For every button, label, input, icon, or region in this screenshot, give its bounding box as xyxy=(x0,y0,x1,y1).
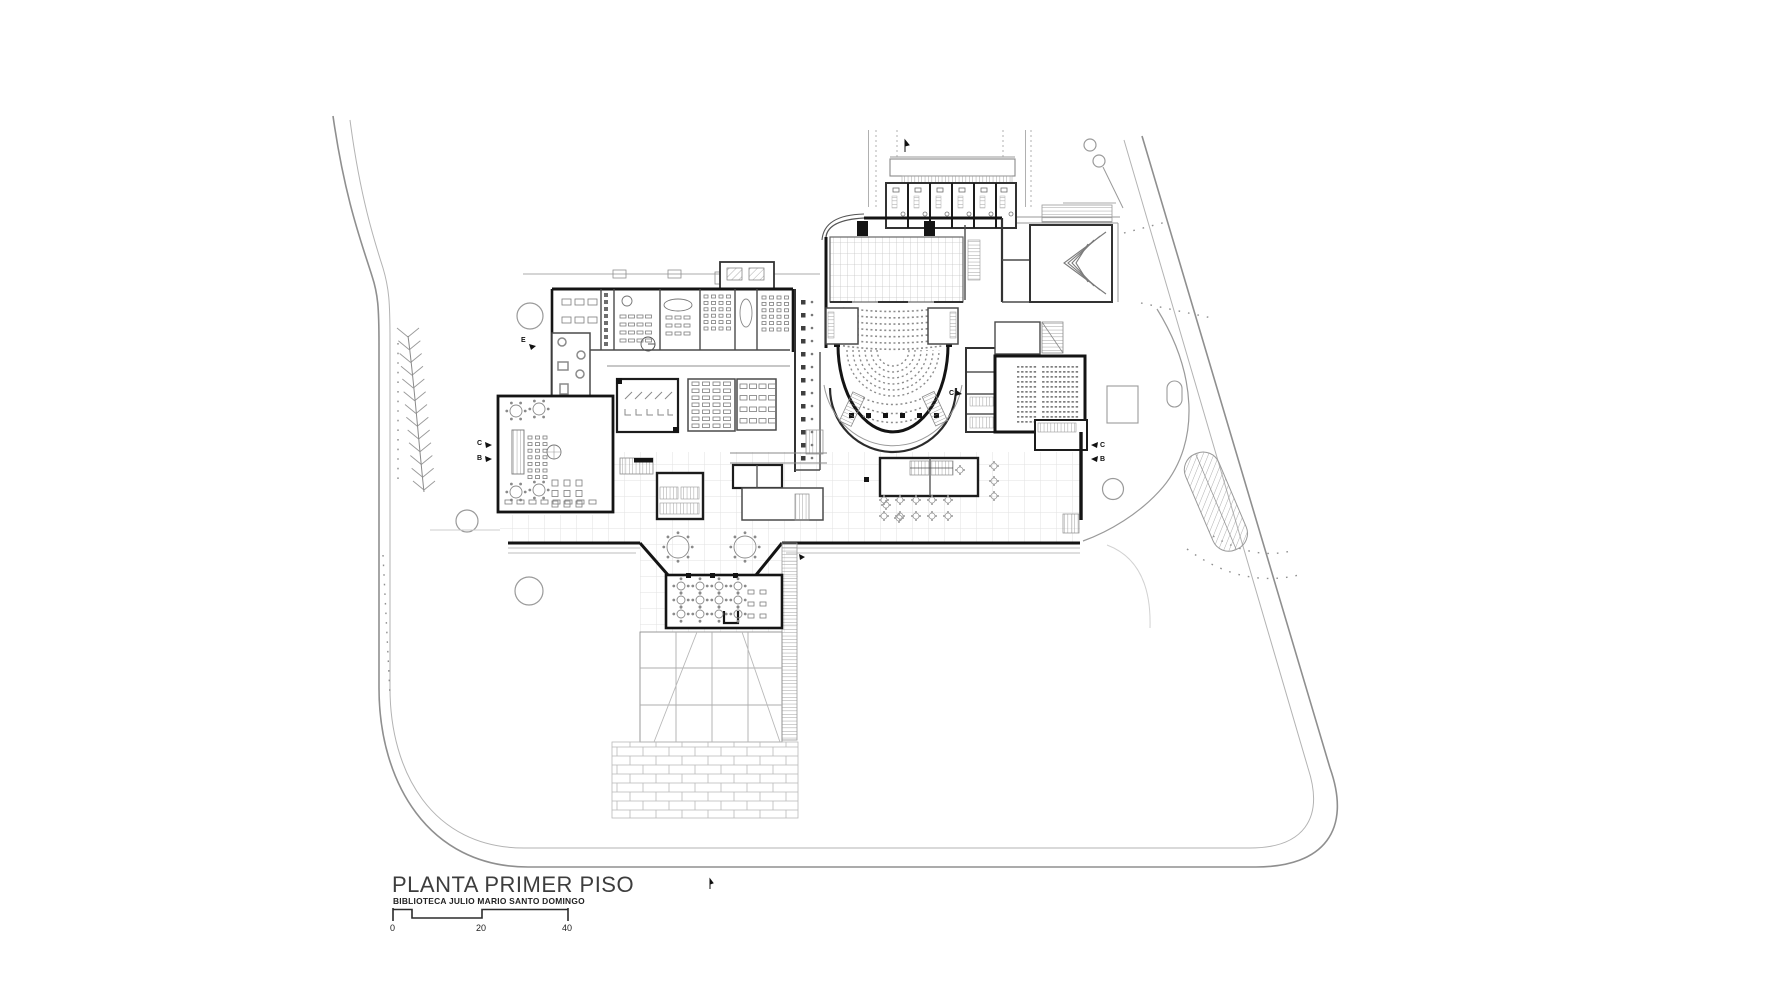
shelf-unit xyxy=(801,326,806,331)
stage-grid xyxy=(830,237,963,302)
patio-square xyxy=(1107,386,1138,423)
scale-label-20: 20 xyxy=(476,923,486,933)
seat-row xyxy=(877,350,909,366)
round-table xyxy=(622,296,632,306)
stair-cluster xyxy=(620,458,653,474)
shelf-unit xyxy=(801,430,806,435)
vent-grates xyxy=(613,270,731,284)
seminar-ring xyxy=(740,299,752,327)
furniture-grid xyxy=(562,299,597,323)
shelf-unit xyxy=(801,313,806,318)
brick-paving xyxy=(612,742,798,818)
tree-icon xyxy=(515,577,543,605)
childrens-block xyxy=(498,396,613,512)
shelf-unit xyxy=(801,339,806,344)
shelf-unit xyxy=(801,365,806,370)
svg-text:C: C xyxy=(477,440,482,447)
cafe-room xyxy=(666,573,782,628)
vomitory-ramp xyxy=(839,392,864,426)
hall-seats-left xyxy=(1017,364,1037,424)
bookshelf-strip xyxy=(604,293,608,346)
shelf-unit xyxy=(801,417,806,422)
vomitory-ramp xyxy=(922,391,947,425)
scale-bar xyxy=(393,908,568,921)
floor-plan-page: E C B C B C xyxy=(0,0,1776,1006)
page-title: PLANTA PRIMER PISO xyxy=(392,872,634,897)
foyer-tick-icon xyxy=(799,554,805,560)
tree-icon xyxy=(517,303,543,329)
furniture-grid xyxy=(704,295,731,330)
tree-icon xyxy=(1093,155,1105,167)
furniture-grid xyxy=(762,296,789,331)
shelf-unit xyxy=(801,456,806,461)
page-subtitle: BIBLIOTECA JULIO MARIO SANTO DOMINGO xyxy=(393,896,585,906)
svg-text:B: B xyxy=(477,455,482,462)
top-strip-dividers xyxy=(556,289,790,366)
column-dot xyxy=(900,413,905,418)
seat-row xyxy=(871,350,915,372)
title-block: PLANTA PRIMER PISO BIBLIOTECA JULIO MARI… xyxy=(390,872,634,933)
seat-row xyxy=(863,416,923,423)
scale-label-0: 0 xyxy=(390,923,395,933)
seat-row xyxy=(863,398,923,405)
side-vestibules xyxy=(826,308,958,344)
shelf-unit xyxy=(801,391,806,396)
ramp-hatched xyxy=(1179,447,1253,557)
section-marker-b-west: B xyxy=(477,455,492,462)
bench-pill xyxy=(1167,381,1182,407)
auditorium xyxy=(824,308,962,452)
display-shelf xyxy=(512,430,524,474)
hedge-branch xyxy=(397,328,419,337)
west-wing xyxy=(498,262,827,520)
svg-text:C: C xyxy=(949,390,954,397)
north-tick-icon xyxy=(905,140,909,152)
furniture-grid xyxy=(666,316,690,335)
shelf-unit xyxy=(801,300,806,305)
seat-row xyxy=(843,346,943,350)
shelf-unit xyxy=(801,404,806,409)
section-marker-c-west: C xyxy=(477,440,492,448)
shelf-unit xyxy=(801,443,806,448)
shelf-unit xyxy=(801,378,806,383)
svg-text:B: B xyxy=(1100,456,1105,463)
section-marker-b-east: B xyxy=(1091,456,1105,463)
plaza-curved-edge xyxy=(1083,309,1189,541)
carrel-room xyxy=(688,379,735,431)
terrace xyxy=(640,632,782,742)
entry-block xyxy=(880,458,978,496)
column-dot xyxy=(883,413,888,418)
section-marker-c-east: C xyxy=(1091,442,1105,449)
scale-label-40: 40 xyxy=(562,923,572,933)
annex-room xyxy=(720,262,774,289)
svg-text:C: C xyxy=(1100,442,1105,449)
column-dot xyxy=(917,413,922,418)
shelf-unit xyxy=(801,352,806,357)
plaza-grid-west xyxy=(500,515,607,543)
tree-icon xyxy=(1103,479,1124,500)
seat-row xyxy=(863,407,923,414)
section-marker-e: E xyxy=(521,337,536,350)
ne-ramp-block xyxy=(1030,205,1112,302)
floor-plan-canvas: E C B C B C xyxy=(0,0,1776,1006)
column-dot xyxy=(866,413,871,418)
tree-icon xyxy=(1084,139,1096,151)
seat-row xyxy=(859,350,927,384)
tree-icon xyxy=(456,510,478,532)
hall-seats-right xyxy=(1041,364,1079,424)
south-tick-icon xyxy=(710,879,713,889)
toilet-block xyxy=(657,473,703,519)
stage-house xyxy=(822,157,1112,348)
furniture-grid xyxy=(620,315,652,342)
hedge-herringbone xyxy=(397,328,435,492)
svg-text:E: E xyxy=(521,337,526,344)
gallery-room xyxy=(616,378,679,433)
stair-band xyxy=(782,543,797,740)
conference-table xyxy=(664,299,692,311)
seat-row xyxy=(865,350,921,378)
